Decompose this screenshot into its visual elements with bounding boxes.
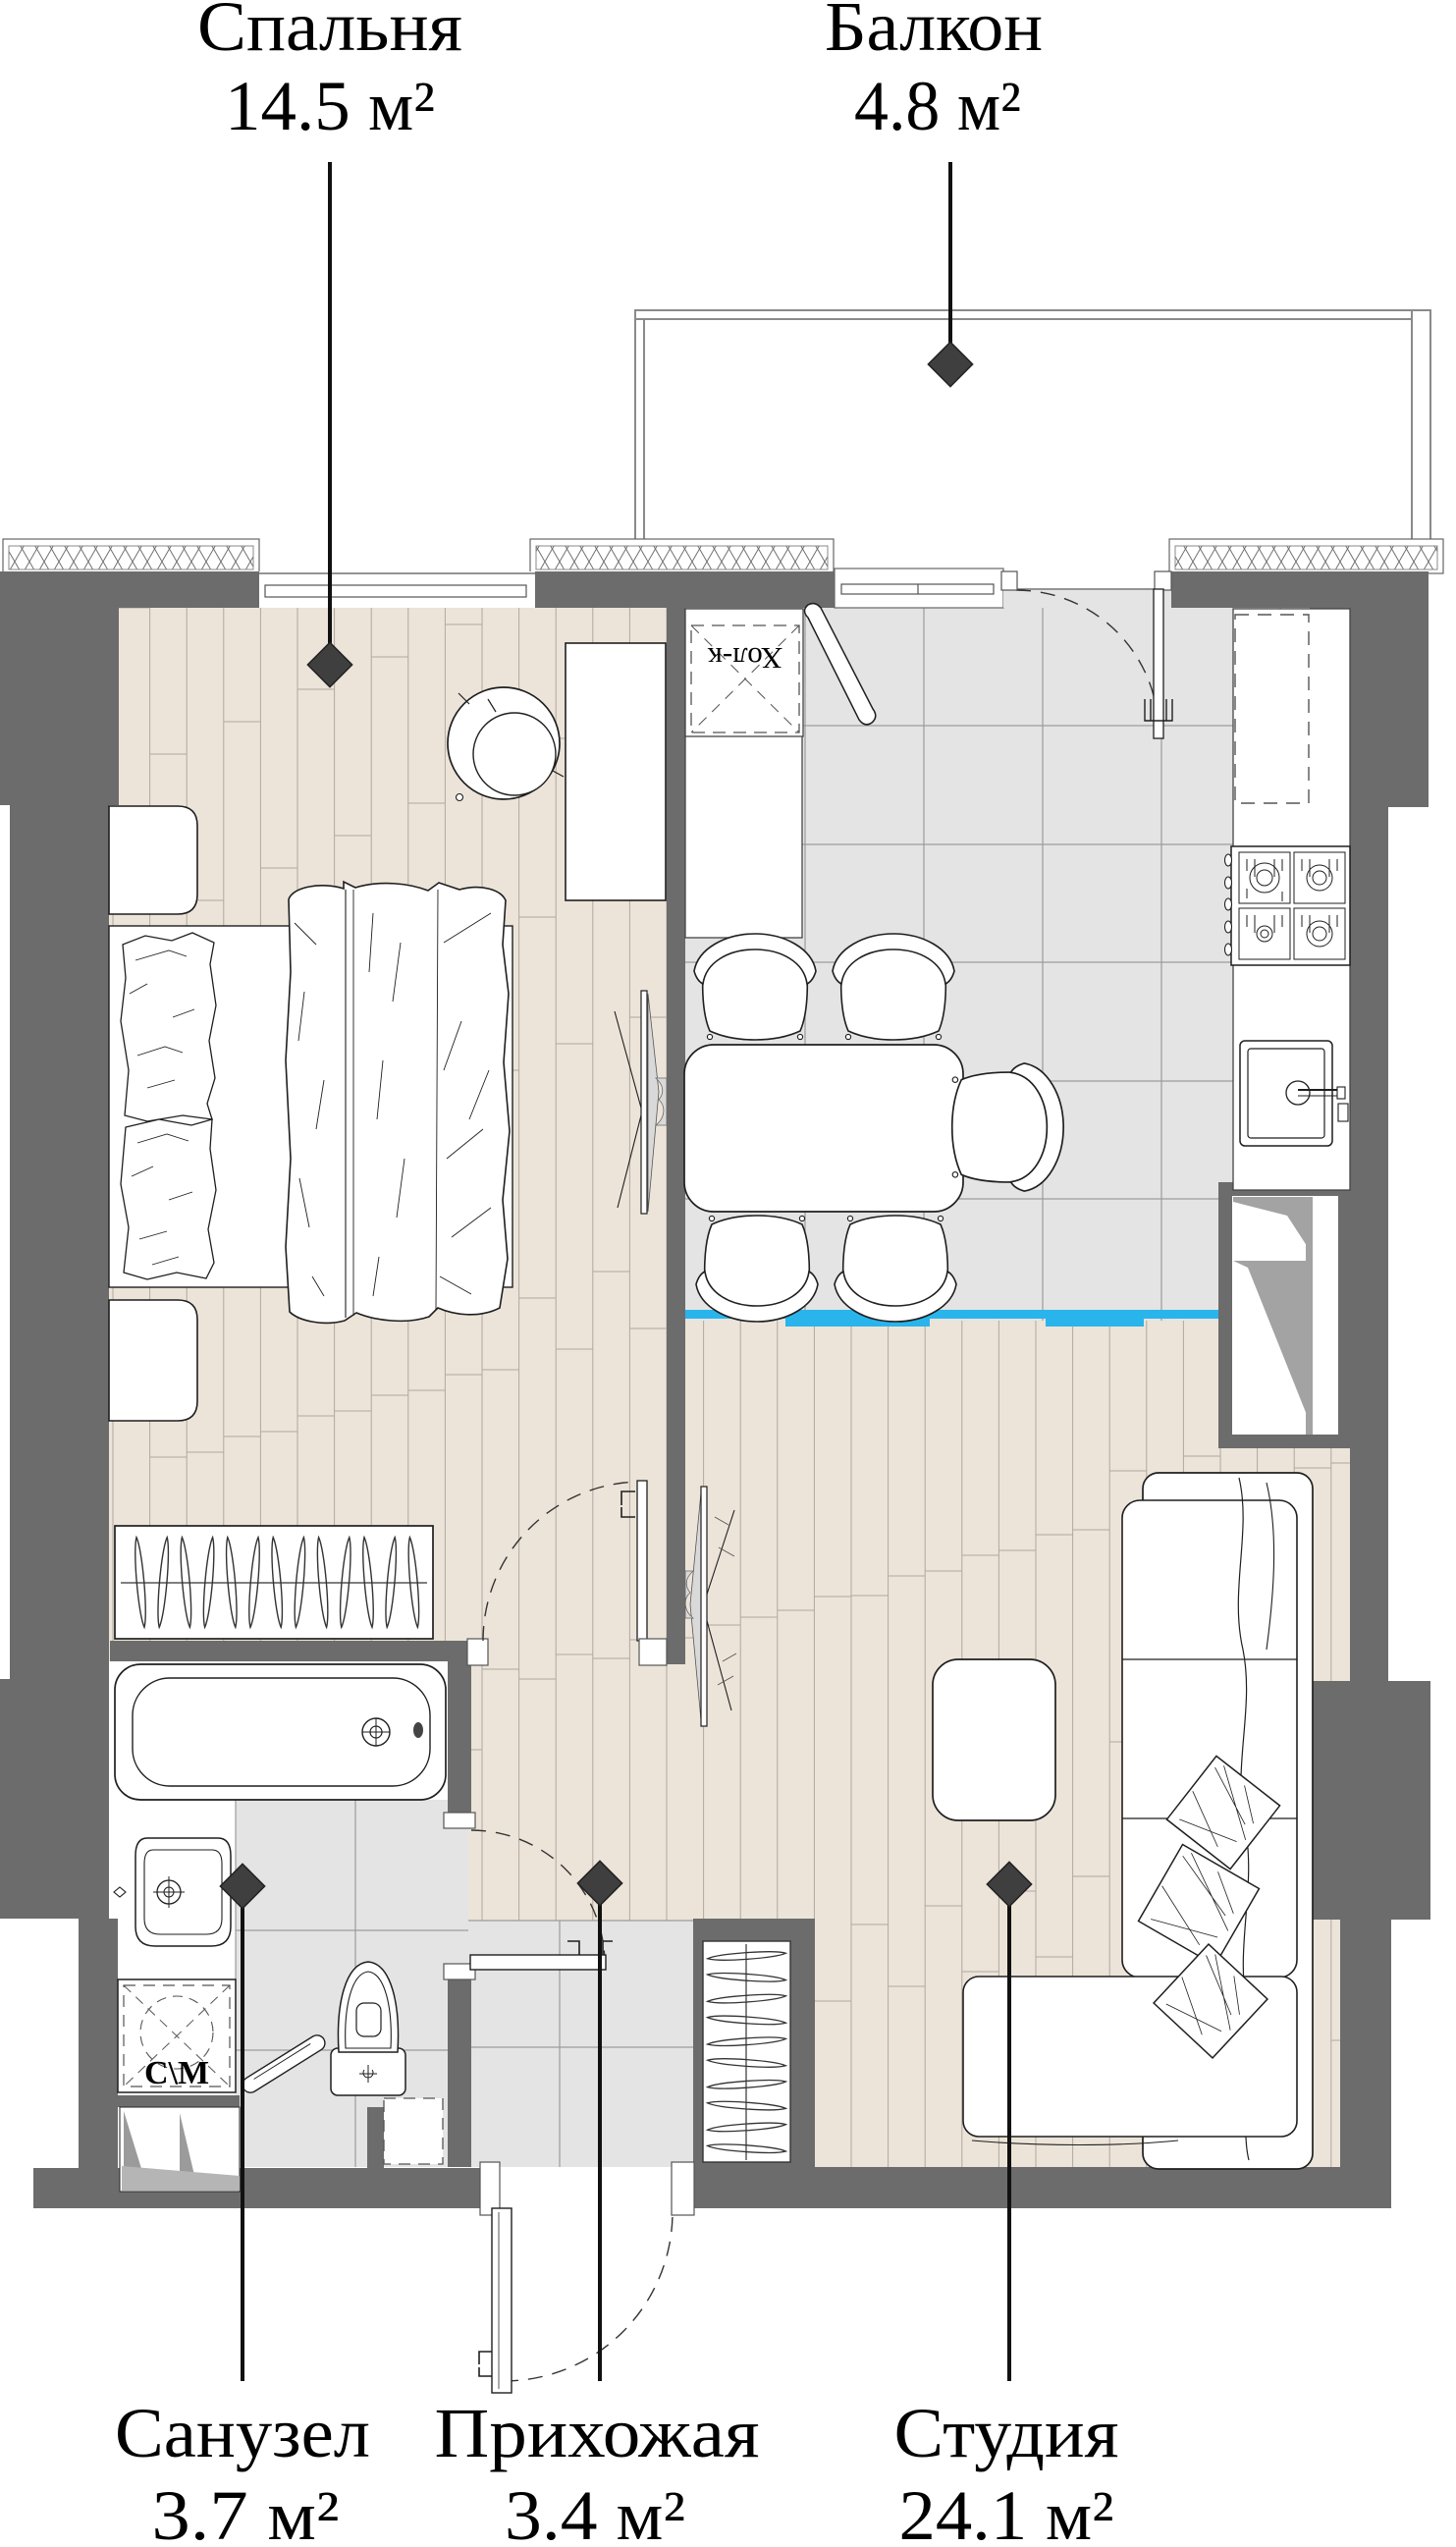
svg-text:24.1 м²: 24.1 м² (899, 2476, 1114, 2547)
svg-text:3.4 м²: 3.4 м² (505, 2476, 685, 2547)
svg-text:3.7 м²: 3.7 м² (152, 2476, 340, 2547)
svg-text:14.5 м²: 14.5 м² (225, 67, 435, 145)
svg-text:Санузел: Санузел (115, 2394, 370, 2472)
svg-text:С\М: С\М (144, 2055, 209, 2091)
svg-text:Прихожая: Прихожая (435, 2394, 760, 2472)
svg-text:4.8 м²: 4.8 м² (854, 67, 1021, 145)
svg-text:Спальня: Спальня (197, 0, 462, 66)
svg-text:Студия: Студия (894, 2394, 1119, 2472)
svg-text:Балкон: Балкон (825, 0, 1043, 66)
svg-text:Хол-к: Хол-к (707, 641, 782, 676)
